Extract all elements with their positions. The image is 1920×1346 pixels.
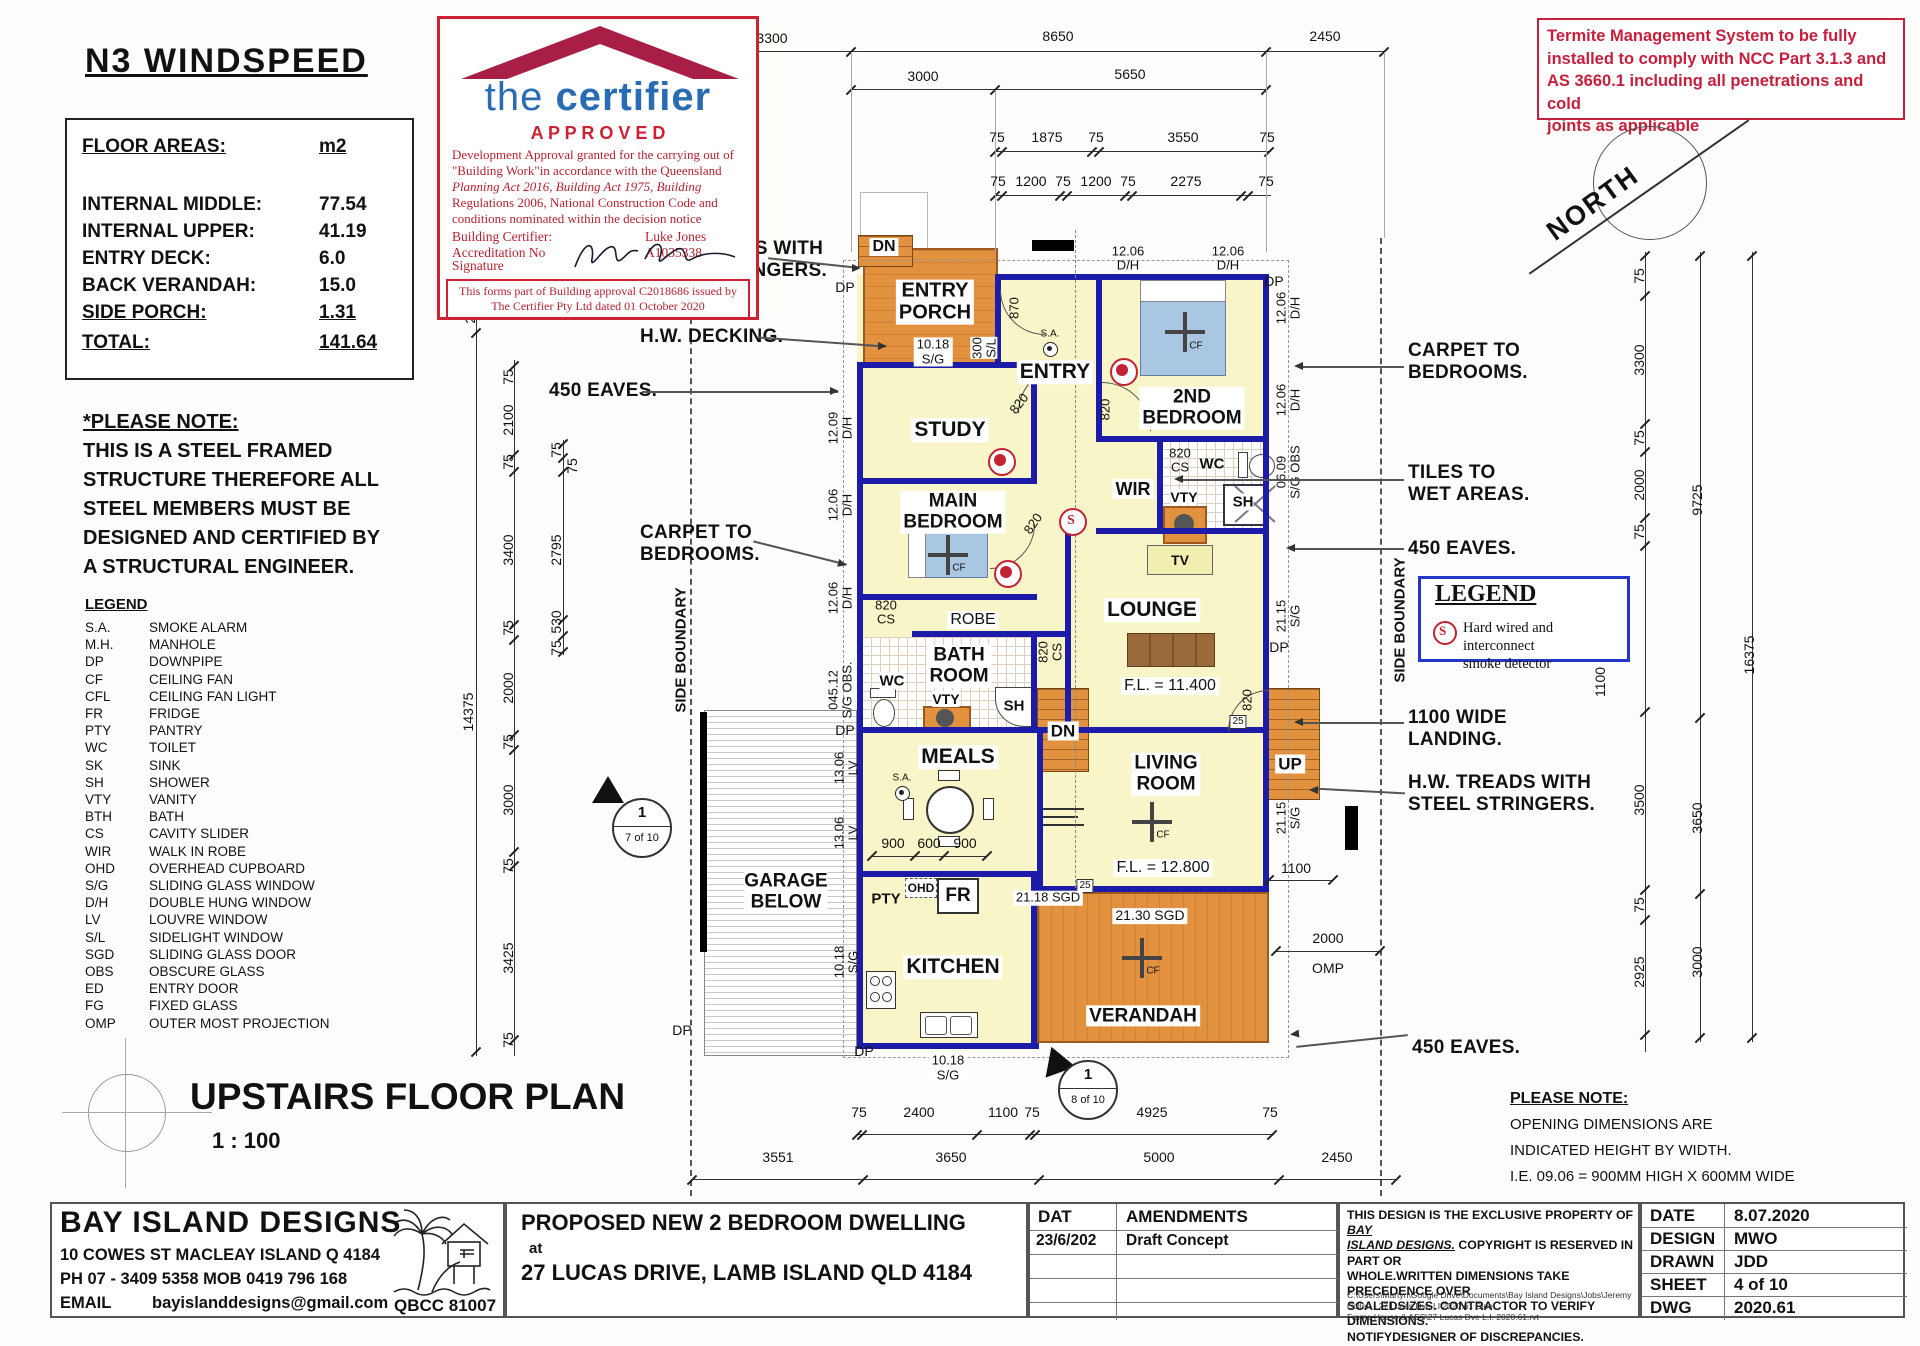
legend-label: OVERHEAD CUPBOARD — [149, 861, 305, 876]
opening-label: 21.15S/G — [1274, 600, 1301, 633]
dim-line — [857, 1134, 1274, 1135]
amend-col1-header: DAT — [1038, 1207, 1072, 1227]
leader — [1292, 548, 1404, 550]
legend-abbr: S/L — [85, 929, 149, 946]
legend-item: S.A.SMOKE ALARM — [85, 619, 330, 636]
legend-abbr: OBS — [85, 963, 149, 980]
leader — [753, 540, 847, 565]
legend-item: OMPOUTER MOST PROJECTION — [85, 1015, 330, 1032]
info-label: SHEET — [1650, 1275, 1707, 1295]
legend-label: VANITY — [149, 792, 197, 807]
side-boundary-line-left — [690, 238, 692, 1196]
legend-label: SLIDING GLASS WINDOW — [149, 878, 315, 893]
dim: 3000 — [1689, 946, 1705, 977]
dp-label: DP — [1269, 639, 1288, 655]
smoke-alarm-dot — [1047, 346, 1052, 351]
plan-title: UPSTAIRS FLOOR PLAN — [190, 1076, 625, 1118]
dim-line — [1276, 951, 1380, 952]
legend-abbr: WIR — [85, 843, 149, 860]
room-label-garage: GARAGEBELOW — [741, 871, 830, 914]
info-value: 2020.61 — [1734, 1298, 1795, 1318]
opening-note-line: INDICATED HEIGHT BY WIDTH. — [1510, 1138, 1795, 1164]
project-line1: PROPOSED NEW 2 BEDROOM DWELLING — [521, 1210, 966, 1236]
dim: 2450 — [1321, 1149, 1352, 1165]
info-divider-v — [1724, 1204, 1725, 1320]
tick — [858, 1175, 869, 1186]
stamp-para-line: "Building Work"in accordance with the Qu… — [452, 163, 752, 179]
legend-item: CFLCEILING FAN LIGHT — [85, 688, 330, 705]
tick — [1267, 1130, 1278, 1141]
legend-label: PANTRY — [149, 723, 203, 738]
legend-item: CFCEILING FAN — [85, 671, 330, 688]
room-label-robe: ROBE — [947, 611, 998, 629]
leader-arrow — [830, 387, 839, 395]
opening-label: 12.09D/H — [826, 412, 853, 445]
legend-item: DPDOWNPIPE — [85, 653, 330, 670]
dim: 8650 — [1042, 28, 1073, 44]
legend-abbr: OMP — [85, 1015, 149, 1032]
dim: 3425 — [500, 942, 516, 973]
note-line: THIS IS A STEEL FRAMED — [83, 437, 380, 466]
section-marker-circle: 1 8 of 10 — [1058, 1060, 1118, 1120]
legend-abbr: S.A. — [85, 619, 149, 636]
note-line: A STRUCTURAL ENGINEER. — [83, 553, 380, 582]
opening-label: 820CS — [875, 598, 897, 625]
brand-certifier: certifier — [555, 75, 711, 119]
termite-line: installed to comply with NCC Part 3.1.3 … — [1547, 48, 1895, 71]
area-row-value: 15.0 — [319, 275, 356, 297]
dim: 3650 — [935, 1149, 966, 1165]
opening-label: 21.15S/G — [1274, 802, 1301, 835]
dim: 3500 — [1631, 784, 1647, 815]
smoke-legend-line: Hard wired and interconnect — [1463, 619, 1627, 655]
stamp-footer-line: The Certifier Pty Ltd dated 01 October 2… — [448, 299, 748, 314]
stamp-footer-box: This forms part of Building approval C20… — [446, 279, 750, 319]
side-boundary-line-right — [1380, 238, 1382, 1196]
info-value: MWO — [1734, 1229, 1777, 1249]
room-label-2nd-bedroom: 2NDBEDROOM — [1139, 387, 1244, 430]
info-value: 4 of 10 — [1734, 1275, 1788, 1295]
company-box: BAY ISLAND DESIGNS 10 COWES ST MACLEAY I… — [50, 1202, 505, 1318]
stamp-para-line: conditions nominated within the decision… — [452, 211, 752, 227]
legend-label: SLIDING GLASS DOOR — [149, 947, 296, 962]
label-sh: SH — [1233, 494, 1254, 511]
dim: 75 — [1631, 897, 1647, 913]
legend-label: TOILET — [149, 740, 196, 755]
info-label: DATE — [1650, 1206, 1695, 1226]
copyright-text: THIS DESIGN IS THE EXCLUSIVE PROPERTY OF… — [1347, 1208, 1637, 1345]
area-row-value: 41.19 — [319, 221, 367, 243]
amend-divider-h — [1030, 1230, 1340, 1231]
info-value: JDD — [1734, 1252, 1768, 1272]
dim-line — [692, 51, 1384, 52]
info-divider-h — [1642, 1227, 1907, 1228]
legend-abbr: VTY — [85, 791, 149, 808]
smoke-alarm-red-dot — [994, 454, 1006, 466]
opening-label: 06.09S/G OBS — [1274, 445, 1301, 498]
dim: 1100 — [988, 1104, 1018, 1120]
file-path: C:\Users\Martyn\Google Drive\Documents\B… — [1347, 1290, 1639, 1323]
legend-abbr: WC — [85, 739, 149, 756]
dim: 1100 — [1281, 860, 1311, 876]
dim: 16375 — [1741, 636, 1757, 675]
note-line: *PLEASE NOTE: — [83, 408, 380, 437]
opening-label: 820CS — [1036, 641, 1063, 663]
dim: 75 — [500, 1032, 516, 1048]
stairs-dn-label: DN — [869, 238, 898, 256]
dim: 530 — [548, 610, 564, 633]
dim: 75 — [1631, 524, 1647, 540]
legend-abbr: CF — [85, 671, 149, 688]
legend-item: D/HDOUBLE HUNG WINDOW — [85, 894, 330, 911]
legend-item: EDENTRY DOOR — [85, 980, 330, 997]
dim-line — [851, 89, 1266, 90]
stairs-dn-label: DN — [1048, 721, 1079, 740]
leader-arrow — [837, 559, 848, 569]
legend-label: LOUVRE WINDOW — [149, 912, 268, 927]
label-wc: WC — [880, 673, 905, 690]
legend-abbr: SGD — [85, 946, 149, 963]
dim: 75 — [851, 1104, 867, 1120]
project-at: at — [529, 1240, 542, 1257]
dim: 75 — [564, 458, 580, 474]
legend-item: LVLOUVRE WINDOW — [85, 911, 330, 928]
room-label-main-bedroom: MAINBEDROOM — [900, 491, 1005, 534]
legend-abbr: BTH — [85, 808, 149, 825]
leader-arrow — [1294, 362, 1303, 370]
legend-item: OHDOVERHEAD CUPBOARD — [85, 860, 330, 877]
dim: 5650 — [1114, 66, 1145, 82]
opening-label: 10.18S/G — [929, 1053, 968, 1082]
dim: 3000 — [500, 784, 516, 815]
stamp-certifier-label: Building Certifier: — [452, 229, 552, 245]
label-wc: WC — [1200, 456, 1225, 473]
hardwired-smoke-s: S — [1067, 513, 1075, 529]
dim: 900 — [953, 835, 976, 851]
dim: 1200 — [1080, 173, 1111, 189]
legend-item: SKSINK — [85, 757, 330, 774]
dim: 14375 — [460, 693, 476, 732]
legend-item: S/LSIDELIGHT WINDOW — [85, 929, 330, 946]
dim: 75 — [1120, 173, 1136, 189]
legend-item: S/GSLIDING GLASS WINDOW — [85, 877, 330, 894]
callout-carpet-right: CARPET TOBEDROOMS. — [1408, 340, 1528, 384]
amend-divider-h — [1030, 1254, 1340, 1255]
legend-label: DOWNPIPE — [149, 654, 223, 669]
copyright-line: THIS DESIGN IS THE EXCLUSIVE PROPERTY OF… — [1347, 1208, 1637, 1238]
legend-label: DOUBLE HUNG WINDOW — [149, 895, 311, 910]
stamp-signature-label: Signature — [452, 258, 504, 274]
smoke-alarm-red-dot — [1116, 364, 1128, 376]
legend-label: SHOWER — [149, 775, 210, 790]
info-value: 8.07.2020 — [1734, 1206, 1810, 1226]
legend-item: PTYPANTRY — [85, 722, 330, 739]
dim: 4925 — [1136, 1104, 1167, 1120]
legend-abbr: OHD — [85, 860, 149, 877]
dim: 75 — [990, 173, 1006, 189]
dim: 75 — [1055, 173, 1071, 189]
leader-arrow — [1290, 1030, 1300, 1039]
legend-abbr: FG — [85, 997, 149, 1014]
termite-note: Termite Management System to be fully in… — [1537, 18, 1905, 120]
callout-450-eaves-right: 450 EAVES. — [1408, 538, 1516, 560]
project-box: PROPOSED NEW 2 BEDROOM DWELLING at 27 LU… — [505, 1202, 1028, 1318]
ext-line — [1384, 52, 1385, 238]
door-size: 820 — [1097, 399, 1112, 421]
leader — [1180, 479, 1404, 481]
legend-item: BTHBATH — [85, 808, 330, 825]
dim: 75 — [548, 442, 564, 458]
garage-edge-black — [700, 712, 707, 952]
dim: 2450 — [1309, 28, 1340, 44]
company-email-label: EMAIL — [60, 1294, 111, 1313]
callout-carpet-left: CARPET TOBEDROOMS. — [640, 522, 760, 566]
dim: 3550 — [1167, 129, 1198, 145]
dim: 2000 — [1312, 930, 1343, 946]
dim: 2100 — [500, 404, 516, 435]
dim: 75 — [548, 640, 564, 656]
project-line2: 27 LUCAS DRIVE, LAMB ISLAND QLD 4184 — [521, 1260, 972, 1286]
door-size: 820 — [1240, 689, 1255, 711]
sa-label: S.A. — [893, 773, 912, 784]
floor-areas-unit: m2 — [319, 136, 346, 158]
dim: 2795 — [548, 534, 564, 565]
room-label-living: LIVINGROOM — [1131, 753, 1200, 796]
centre-line — [1075, 230, 1076, 888]
dim: 3000 — [907, 68, 938, 84]
opening-label: 10.18S/G — [914, 337, 953, 366]
marker-sheet: 8 of 10 — [1060, 1089, 1116, 1111]
label-pty: PTY — [871, 891, 900, 908]
plan-symbol-line-v — [125, 1038, 126, 1188]
ext-line — [851, 52, 852, 252]
room-label-entry: ENTRY — [1017, 360, 1093, 384]
opening-label: 12.06D/H — [1274, 292, 1301, 325]
amend-row-desc: Draft Concept — [1126, 1232, 1228, 1250]
opening-label: 12.06D/H — [1112, 244, 1145, 271]
room-label-bathroom: BATHROOM — [926, 645, 991, 688]
dim: 900 — [881, 835, 904, 851]
section-triangle — [592, 776, 624, 803]
legend-abbr: ED — [85, 980, 149, 997]
opening-label: 12.06D/H — [1212, 244, 1245, 271]
legend-abbr: FR — [85, 705, 149, 722]
side-boundary-label: SIDE BOUNDARY — [673, 587, 690, 712]
dim-line — [872, 856, 987, 857]
company-logo-palm-icon — [390, 1204, 492, 1301]
callout-tiles-right: TILES TOWET AREAS. — [1408, 462, 1530, 506]
smoke-legend-text: Hard wired and interconnect smoke detect… — [1463, 619, 1627, 673]
opening-label: 300S/L — [970, 337, 997, 359]
tick — [972, 1130, 983, 1141]
smoke-alarm-red-dot — [1000, 566, 1012, 578]
dim: 75 — [500, 454, 516, 470]
tick — [1391, 1175, 1402, 1186]
label-tv: TV — [1171, 552, 1189, 568]
dim: 2275 — [1170, 173, 1201, 189]
dim: 1200 — [1015, 173, 1046, 189]
room-label-wir: WIR — [1113, 479, 1154, 499]
stamp-para-line: Development Approval granted for the car… — [452, 147, 752, 163]
legend-title: LEGEND — [85, 596, 330, 613]
termite-line: joints as applicable — [1547, 115, 1895, 138]
legend-label: OBSCURE GLASS — [149, 964, 265, 979]
side-boundary-label: SIDE BOUNDARY — [1392, 557, 1409, 682]
dim: 75 — [1262, 1104, 1278, 1120]
floor-level-lounge: F.L. = 11.400 — [1121, 677, 1219, 695]
company-phone: PH 07 - 3409 5358 MOB 0419 796 168 — [60, 1270, 347, 1289]
legend-abbr: PTY — [85, 722, 149, 739]
opening-label: 13.06LV — [832, 752, 859, 785]
leader-arrow — [878, 342, 887, 350]
tick — [1274, 1175, 1285, 1186]
leader-arrow — [1286, 544, 1295, 552]
dim: 1875 — [1031, 129, 1062, 145]
dp-label: DP — [854, 1043, 873, 1059]
marker-number: 1 — [614, 800, 670, 827]
leader — [1300, 722, 1404, 724]
leader — [642, 391, 838, 393]
certifier-stamp: the certifier A P P R O V E D Developmen… — [437, 16, 759, 320]
opening-label: 820CS — [1169, 446, 1191, 473]
smoke-legend-line: smoke detector — [1463, 655, 1627, 673]
dim: 75 — [1631, 430, 1647, 446]
dim: 3300 — [1631, 344, 1647, 375]
company-qbcc: QBCC 81007 — [394, 1296, 496, 1316]
dim: 2400 — [903, 1104, 934, 1120]
opening-label: 045.12S/G OBS. — [826, 661, 853, 718]
steel-structure-note: *PLEASE NOTE: THIS IS A STEEL FRAMED STR… — [83, 408, 380, 582]
area-row-label: INTERNAL MIDDLE: — [82, 194, 262, 216]
abbreviation-legend: LEGEND S.A.SMOKE ALARMM.H.MANHOLEDPDOWNP… — [85, 596, 330, 1032]
stamp-para-line: Planning Act 2016, Building Act 1975, Bu… — [452, 179, 752, 195]
beam-black — [1032, 240, 1074, 251]
leader-arrow — [1294, 718, 1303, 726]
dim: 75 — [500, 369, 516, 385]
amend-row-date: 23/6/202 — [1036, 1232, 1096, 1250]
legend-label: BATH — [149, 809, 184, 824]
opening-note-line: I.E. 09.06 = 900MM HIGH X 600MM WIDE — [1510, 1164, 1795, 1190]
copyright-box: THIS DESIGN IS THE EXCLUSIVE PROPERTY OF… — [1338, 1202, 1640, 1318]
dp-label: DP — [835, 279, 854, 295]
dim-line — [476, 290, 477, 1056]
dim-line — [1269, 880, 1333, 881]
legend-abbr: SH — [85, 774, 149, 791]
dim: 2000 — [500, 672, 516, 703]
room-label-kitchen: KITCHEN — [903, 955, 1002, 979]
smoke-legend-box: LEGEND S Hard wired and interconnect smo… — [1418, 576, 1630, 662]
plan-scale: 1 : 100 — [212, 1128, 281, 1154]
dim: 3551 — [762, 1149, 793, 1165]
dim: 3400 — [500, 534, 516, 565]
opening-label: 21.30 SGD — [1112, 908, 1187, 924]
dp-label: DP — [1264, 273, 1283, 289]
info-divider-h — [1642, 1250, 1907, 1251]
info-table: DATE 8.07.2020 DESIGN MWO DRAWN JDD SHEE… — [1640, 1202, 1905, 1318]
legend-item: OBSOBSCURE GLASS — [85, 963, 330, 980]
legend-label: FIXED GLASS — [149, 998, 238, 1013]
legend-label: SIDELIGHT WINDOW — [149, 930, 283, 945]
marker-number: 1 — [1060, 1062, 1116, 1089]
legend-item: M.H.MANHOLE — [85, 636, 330, 653]
opening-label: 12.06D/H — [826, 582, 853, 615]
legend-item: SHSHOWER — [85, 774, 330, 791]
marker-sheet: 7 of 10 — [614, 827, 670, 849]
legend-item: FGFIXED GLASS — [85, 997, 330, 1014]
amendments-box: DAT AMENDMENTS 23/6/202 Draft Concept — [1028, 1202, 1338, 1318]
floor-plan-sheet: { "colors":{"wall_blue":"#1c1ca8","room_… — [0, 0, 1920, 1346]
callout-450-eaves-bottom: 450 EAVES. — [1412, 1037, 1520, 1059]
sa-label: S.A. — [1041, 329, 1060, 340]
room-label-meals: MEALS — [918, 745, 998, 769]
copyright-line: NOTIFYDESIGNER OF DISCREPANCIES. — [1347, 1330, 1637, 1345]
opening-label: 10.18S/G — [832, 946, 859, 979]
stamp-paragraph: Development Approval granted for the car… — [452, 147, 752, 227]
dim: 5000 — [1143, 1149, 1174, 1165]
dim: 75 — [500, 620, 516, 636]
door-size: 870 — [1007, 297, 1022, 319]
smoke-legend-s: S — [1439, 623, 1446, 639]
company-address: 10 COWES ST MACLEAY ISLAND Q 4184 — [60, 1246, 380, 1265]
label-vty: VTY — [1170, 489, 1197, 505]
dim: 2925 — [1631, 956, 1647, 987]
dim: 75 — [989, 129, 1005, 145]
opening-note-title: PLEASE NOTE: — [1510, 1086, 1795, 1112]
leader — [1300, 366, 1404, 368]
callout-landing: 1100 WIDELANDING. — [1408, 707, 1507, 751]
room-label-study: STUDY — [911, 418, 988, 442]
opening-note-line: OPENING DIMENSIONS ARE — [1510, 1112, 1795, 1138]
dim-line — [995, 151, 1271, 152]
dim: 3650 — [1689, 802, 1705, 833]
section-marker-circle: 1 7 of 10 — [612, 798, 672, 858]
copyright-line: ISLAND DESIGNS. COPYRIGHT IS RESERVED IN… — [1347, 1238, 1637, 1268]
page-title: N3 WINDSPEED — [85, 42, 368, 81]
dim: 2000 — [1631, 469, 1647, 500]
step-label: 25 — [1229, 715, 1246, 729]
note-line: STEEL MEMBERS MUST BE — [83, 495, 380, 524]
label-vty: VTY — [932, 691, 959, 707]
area-row-label: ENTRY DECK: — [82, 248, 211, 270]
dim: 75 — [500, 734, 516, 750]
dim: 75 — [1088, 129, 1104, 145]
floor-level-living: F.L. = 12.800 — [1114, 859, 1213, 877]
legend-abbr: SK — [85, 757, 149, 774]
smoke-alarm-dot — [899, 790, 904, 795]
info-label: DWG — [1650, 1298, 1692, 1318]
file-path-line: C:\Users\Martyn\Google Drive\Documents\B… — [1347, 1290, 1639, 1312]
legend-items: S.A.SMOKE ALARMM.H.MANHOLEDPDOWNPIPECFCE… — [85, 619, 330, 1032]
signature-scribble — [570, 231, 740, 282]
legend-abbr: CS — [85, 825, 149, 842]
certifier-brand: the certifier — [440, 75, 756, 120]
label-ohd: OHD — [908, 881, 935, 895]
info-divider-h — [1642, 1273, 1907, 1274]
room-label-verandah: VERANDAH — [1086, 1005, 1200, 1026]
dim: 75 — [1258, 173, 1274, 189]
termite-line: Termite Management System to be fully — [1547, 25, 1895, 48]
legend-label: SMOKE ALARM — [149, 620, 247, 635]
file-path-line: Frame House & AES\27 Lucas Dve L.I. 2020… — [1347, 1312, 1639, 1323]
floor-areas-table: FLOOR AREAS: m2 INTERNAL MIDDLE: 77.54 I… — [65, 118, 414, 380]
info-divider-h — [1642, 1296, 1907, 1297]
note-line: DESIGNED AND CERTIFIED BY — [83, 524, 380, 553]
stamp-footer-line: This forms part of Building approval C20… — [448, 284, 748, 299]
legend-abbr: LV — [85, 911, 149, 928]
legend-abbr: M.H. — [85, 636, 149, 653]
legend-label: ENTRY DOOR — [149, 981, 239, 996]
amend-divider-h — [1030, 1278, 1340, 1279]
